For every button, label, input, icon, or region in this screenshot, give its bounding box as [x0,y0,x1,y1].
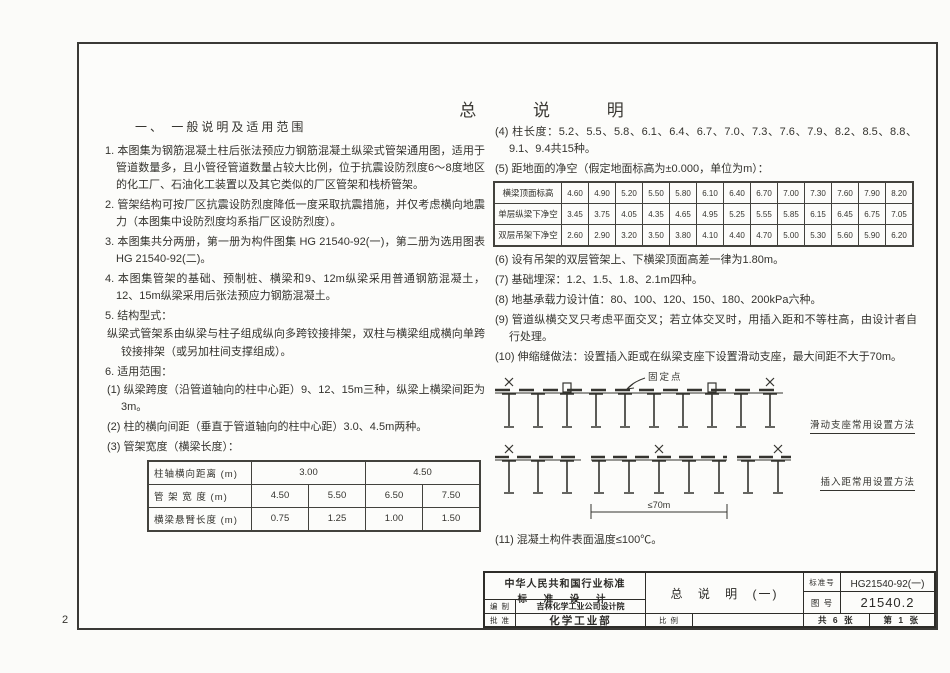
standard-number-label: 标准号 [804,573,841,591]
note-subitem: (6) 设有吊架的双层管架上、下横梁顶面高差一律为1.80m。 [495,252,917,269]
row-header-cell: 双层吊架下净空 [494,225,562,247]
row-header-cell: 单层纵梁下净空 [494,204,562,225]
section-heading: 一、 一般说明及适用范围 [105,118,485,135]
standard-authority: 中华人民共和国行业标准 标 准 设 计 [485,573,645,599]
clearance-table: 横梁顶面标高4.604.905.205.505.806.106.406.707.… [493,181,914,247]
value-cell: 4.65 [670,204,697,225]
value-cell: 5.50 [643,182,670,204]
value-cell: 4.05 [616,204,643,225]
note-item: 3. 本图集共分两册，第一册为构件图集 HG 21540-92(一)，第二册为选… [105,234,485,268]
scale-value [693,614,803,626]
row-header-cell: 管 架 宽 度 (m) [148,484,252,507]
drawing-title: 总 说 明 (一) [645,573,803,613]
value-cell: 7.50 [423,484,481,507]
value-cell: 3.20 [616,225,643,247]
row-header-cell: 柱轴横向距离 (m) [148,461,252,485]
scale-row: 比 例 [645,613,803,626]
value-cell: 7.30 [805,182,832,204]
note-subitem: (1) 纵梁跨度（沿管道轴向的柱中心距）9、12、15m三种，纵梁上横梁间距为3… [107,382,485,416]
value-cell: 3.75 [589,204,616,225]
table-row: 横梁顶面标高4.604.905.205.505.806.106.406.707.… [494,182,913,204]
value-cell: 2.90 [589,225,616,247]
value-cell: 6.40 [724,182,751,204]
note-subitem: (3) 管架宽度（横梁长度）： [107,439,485,456]
value-cell: 5.60 [832,225,859,247]
sheet-number: 第 1 张 [870,614,935,626]
pipe-rack-elevation-sketch-1: 固定点 [493,370,793,440]
fixed-point-label: 固定点 [648,371,683,383]
value-cell: 6.45 [832,204,859,225]
approved-by-row: 批 准 化学工业部 [485,613,645,626]
compiled-by-row: 编 制 吉林化学工业公司设计院 [485,599,645,613]
note-subitem: (7) 基础埋深：1.2、1.5、1.8、2.1m四种。 [495,272,917,289]
note-subitem: (2) 柱的横向间距（垂直于管道轴向的柱中心距）3.0、4.5m两种。 [107,419,485,436]
figure-number-value: 21540.2 [841,592,934,613]
table-row: 管 架 宽 度 (m)4.505.506.507.50 [148,484,480,507]
value-cell: 4.70 [751,225,778,247]
value-cell: 6.15 [805,204,832,225]
scanned-sheet: 总 说 明 一、 一般说明及适用范围 1. 本图集为钢筋混凝土柱后张法预应力钢筋… [0,0,950,673]
note-subitem: (9) 管道纵横交叉只考虑平面交叉；若立体交叉时，用插入距和不等柱高，由设计者自… [495,312,917,346]
approved-by-value: 化学工业部 [516,614,645,626]
value-cell: 2.60 [562,225,589,247]
figure-number-row: 图 号 21540.2 [803,591,934,613]
compiled-by-value: 吉林化学工业公司设计院 [516,600,645,613]
figure-number-label: 图 号 [804,592,841,613]
note-item: 2. 管架结构可按厂区抗震设防烈度降低一度采取抗震措施，并仅考虑横向地震力（本图… [105,197,485,231]
sheets-total: 共 6 张 [804,614,870,626]
insertion-distance-diagram: ≤70m 插入距常用设置方法 [493,440,917,532]
note-item: 纵梁式管架系由纵梁与柱子组成纵向多跨铰接排架，双柱与横梁组成横向单跨铰接排架（或… [107,326,485,360]
value-cell: 6.50 [366,484,423,507]
value-cell: 5.20 [616,182,643,204]
value-cell: 3.00 [252,461,366,485]
value-cell: 4.50 [252,484,309,507]
right-column: (4) 柱长度：5.2、5.5、5.8、6.1、6.4、6.7、7.0、7.3、… [493,124,917,552]
approved-by-label: 批 准 [485,614,516,626]
sheet-count-row: 共 6 张 第 1 张 [803,613,934,626]
value-cell: 0.75 [252,507,309,531]
value-cell: 7.60 [832,182,859,204]
note-subitem: (4) 柱长度：5.2、5.5、5.8、6.1、6.4、6.7、7.0、7.3、… [495,124,917,158]
value-cell: 7.05 [886,204,914,225]
value-cell: 3.80 [670,225,697,247]
note-subitem: (5) 距地面的净空（假定地面标高为±0.000，单位为m）： [495,161,917,178]
value-cell: 4.10 [697,225,724,247]
sliding-support-caption: 滑动支座常用设置方法 [810,417,915,434]
value-cell: 4.95 [697,204,724,225]
value-cell: 3.45 [562,204,589,225]
insertion-distance-caption: 插入距常用设置方法 [820,474,915,491]
value-cell: 7.90 [859,182,886,204]
note-subitem: (10) 伸缩缝做法：设置插入距或在纵梁支座下设置滑动支座，最大间距不大于70m… [495,349,917,366]
value-cell: 4.50 [366,461,481,485]
value-cell: 6.20 [886,225,914,247]
value-cell: 5.50 [309,484,366,507]
value-cell: 4.40 [724,225,751,247]
value-cell: 6.10 [697,182,724,204]
table-row: 横梁悬臂长度 (m)0.751.251.001.50 [148,507,480,531]
value-cell: 4.90 [589,182,616,204]
value-cell: 1.50 [423,507,481,531]
page-number: 2 [62,614,68,626]
scale-label: 比 例 [646,614,693,626]
table-row: 单层纵梁下净空3.453.754.054.354.654.955.255.555… [494,204,913,225]
value-cell: 1.00 [366,507,423,531]
value-cell: 5.30 [805,225,832,247]
standard-number-value: HG21540-92(一) [841,573,934,591]
value-cell: 6.70 [751,182,778,204]
value-cell: 8.20 [886,182,914,204]
title-block: 中华人民共和国行业标准 标 准 设 计 编 制 吉林化学工业公司设计院 批 准 … [483,571,936,628]
value-cell: 5.25 [724,204,751,225]
row-header-cell: 横梁悬臂长度 (m) [148,507,252,531]
table-row: 双层吊架下净空2.602.903.203.503.804.104.404.705… [494,225,913,247]
value-cell: 5.00 [778,225,805,247]
standard-number-row: 标准号 HG21540-92(一) [803,573,934,591]
rack-width-table: 柱轴横向距离 (m)3.004.50管 架 宽 度 (m)4.505.506.5… [147,460,481,532]
row-header-cell: 横梁顶面标高 [494,182,562,204]
value-cell: 6.75 [859,204,886,225]
table-row: 柱轴横向距离 (m)3.004.50 [148,461,480,485]
value-cell: 5.80 [670,182,697,204]
note-item: 4. 本图集管架的基础、预制桩、横梁和9、12m纵梁采用普通钢筋混凝土，12、1… [105,271,485,305]
standard-authority-line1: 中华人民共和国行业标准 [485,575,645,590]
note-subitem: (8) 地基承载力设计值：80、100、120、150、180、200kPa六种… [495,292,917,309]
value-cell: 5.55 [751,204,778,225]
value-cell: 4.35 [643,204,670,225]
compiled-by-label: 编 制 [485,600,516,613]
note-item: 1. 本图集为钢筋混凝土柱后张法预应力钢筋混凝土纵梁式管架通用图，适用于管道数量… [105,143,485,194]
note-subitem: (11) 混凝土构件表面温度≤100℃。 [495,532,917,549]
drawing-frame: 总 说 明 一、 一般说明及适用范围 1. 本图集为钢筋混凝土柱后张法预应力钢筋… [77,42,938,630]
pipe-rack-elevation-sketch-2: ≤70m [493,440,793,526]
dimension-label: ≤70m [648,500,670,510]
note-item: 5. 结构型式： [105,308,485,325]
value-cell: 4.60 [562,182,589,204]
value-cell: 1.25 [309,507,366,531]
value-cell: 7.00 [778,182,805,204]
value-cell: 5.90 [859,225,886,247]
sliding-support-diagram: 固定点 滑动支座常用设置方法 [493,370,917,440]
value-cell: 5.85 [778,204,805,225]
note-item: 6. 适用范围： [105,364,485,381]
left-column: 一、 一般说明及适用范围 1. 本图集为钢筋混凝土柱后张法预应力钢筋混凝土纵梁式… [105,118,485,532]
value-cell: 3.50 [643,225,670,247]
